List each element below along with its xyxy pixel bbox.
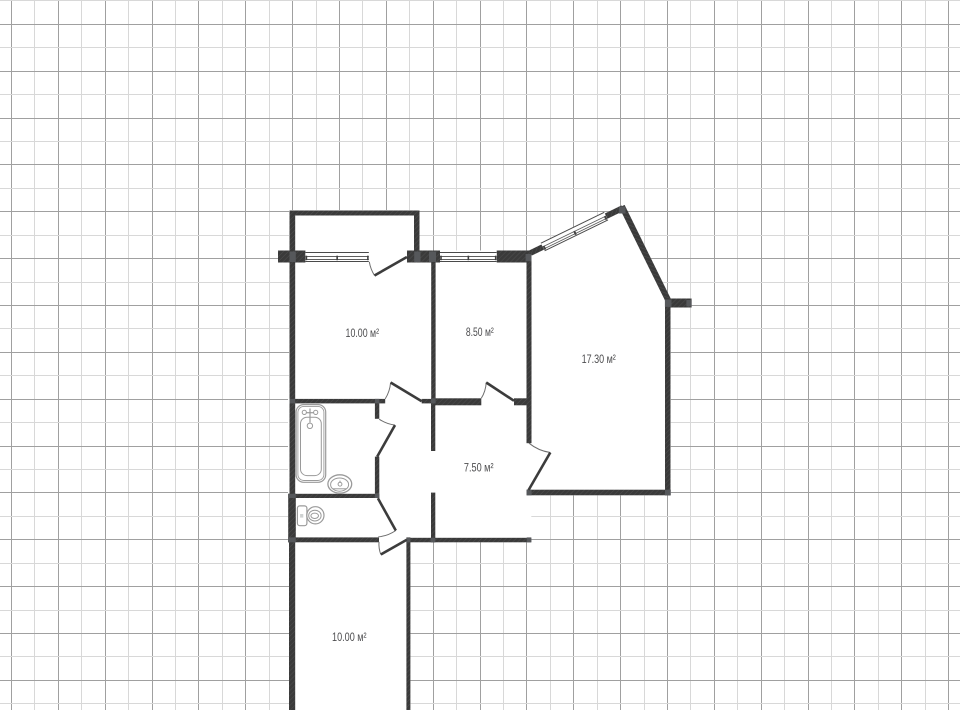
svg-text:8.50 м²: 8.50 м² <box>466 325 494 339</box>
svg-text:7.50 м²: 7.50 м² <box>464 461 494 475</box>
svg-text:17.30 м²: 17.30 м² <box>582 352 616 366</box>
svg-text:10.00 м²: 10.00 м² <box>332 630 367 644</box>
svg-text:10.00 м²: 10.00 м² <box>346 326 380 340</box>
